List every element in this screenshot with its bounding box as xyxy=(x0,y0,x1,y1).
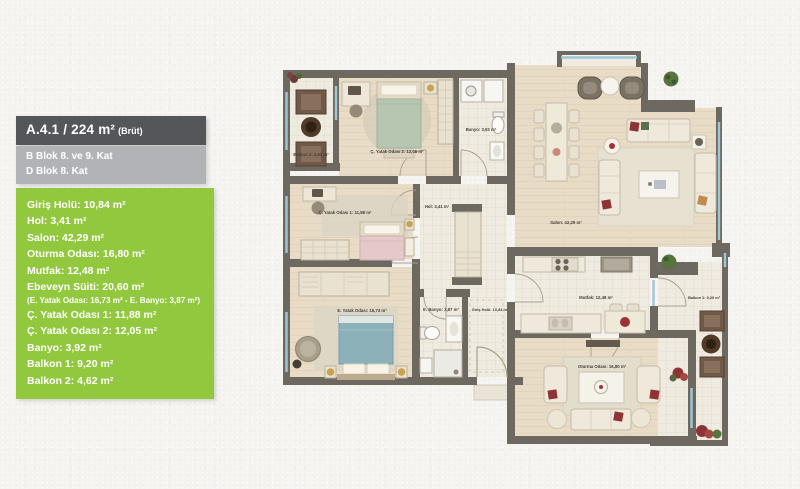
label-cocuk-2: Ç. Yatak Odası 2: 12,05 m² xyxy=(370,149,424,154)
tv-console xyxy=(586,340,620,347)
area-row: Mutfak: 12,48 m² xyxy=(27,263,203,279)
label-ebeveyn: E. Yatak Odası: 16,73 m² xyxy=(337,308,387,313)
label-cocuk-1: Ç. Yatak Odası 1: 11,88 m² xyxy=(319,210,373,215)
label-oturma: Oturma Odası: 16,80 m² xyxy=(578,364,627,369)
area-row: Banyo: 3,92 m² xyxy=(27,340,203,356)
entry-step xyxy=(474,385,510,400)
side-table xyxy=(601,77,619,95)
cabinet xyxy=(484,80,503,102)
dining-chair xyxy=(534,146,544,159)
area-row: Balkon 1: 9,20 m² xyxy=(27,356,203,372)
plant xyxy=(664,72,679,87)
furniture-giris xyxy=(455,212,481,277)
bed xyxy=(339,316,393,364)
area-row: Ç. Yatak Odası 1: 11,88 m² xyxy=(27,307,203,323)
area-row: Giriş Holü: 10,84 m² xyxy=(27,197,203,213)
area-row: Oturma Odası: 16,80 m² xyxy=(27,246,203,262)
block-line-1: B Blok 8. ve 9. Kat xyxy=(26,150,196,165)
label-balkon-2: Balkon 2: 4,62 m² xyxy=(293,152,329,157)
area-row: Ebeveyn Süiti: 20,60 m² xyxy=(27,279,203,295)
dining-table xyxy=(546,103,567,181)
label-hol: Hol: 3,41 m² xyxy=(425,204,450,209)
dining-chair xyxy=(569,164,579,177)
unit-title: A.4.1 / 224 m² xyxy=(26,122,115,137)
dining-chair xyxy=(534,128,544,141)
area-row: Balkon 2: 4,62 m² xyxy=(27,373,203,389)
floor-lamp xyxy=(293,360,302,369)
dining-chair xyxy=(534,164,544,177)
dining-chair xyxy=(569,128,579,141)
area-note: (E. Yatak Odası: 16,73 m² - E. Banyo: 3,… xyxy=(27,295,203,307)
dining-chair xyxy=(569,146,579,159)
area-row: Ç. Yatak Odası 2: 12,05 m² xyxy=(27,323,203,339)
dining-chair xyxy=(534,110,544,123)
area-list: Giriş Holü: 10,84 m² Hol: 3,41 m² Salon:… xyxy=(16,188,214,399)
desk-chair xyxy=(350,105,363,118)
label-balkon-1: Balkon 1: 9,20 m² xyxy=(688,295,721,300)
pouf xyxy=(632,409,651,428)
label-banyo: Banyo: 3,92 m² xyxy=(466,127,497,132)
area-row: Hol: 3,41 m² xyxy=(27,213,203,229)
block-line-2: D Blok 8. Kat xyxy=(26,165,196,180)
label-ebanyo: E. Banyo: 3,87 m² xyxy=(423,307,459,312)
unit-title-suffix: (Brüt) xyxy=(118,126,143,136)
unit-title-bar: A.4.1 / 224 m²(Brüt) xyxy=(16,116,206,145)
dresser xyxy=(405,238,414,256)
pouf xyxy=(548,410,567,429)
cabinet xyxy=(420,358,432,373)
block-info: B Blok 8. ve 9. Kat D Blok 8. Kat xyxy=(16,146,206,184)
label-salon: Salon: 42,29 m² xyxy=(550,220,582,225)
dining-chair xyxy=(569,110,579,123)
label-mutfak: Mutfak: 12,48 m² xyxy=(579,295,613,300)
info-panel: A.4.1 / 224 m²(Brüt) B Blok 8. ve 9. Kat… xyxy=(16,116,214,399)
page: A.4.1 / 224 m²(Brüt) B Blok 8. ve 9. Kat… xyxy=(0,0,800,489)
plant xyxy=(662,255,677,270)
label-giris: Giriş Holü: 10,84 m² xyxy=(472,307,509,312)
area-row: Salon: 42,29 m² xyxy=(27,230,203,246)
